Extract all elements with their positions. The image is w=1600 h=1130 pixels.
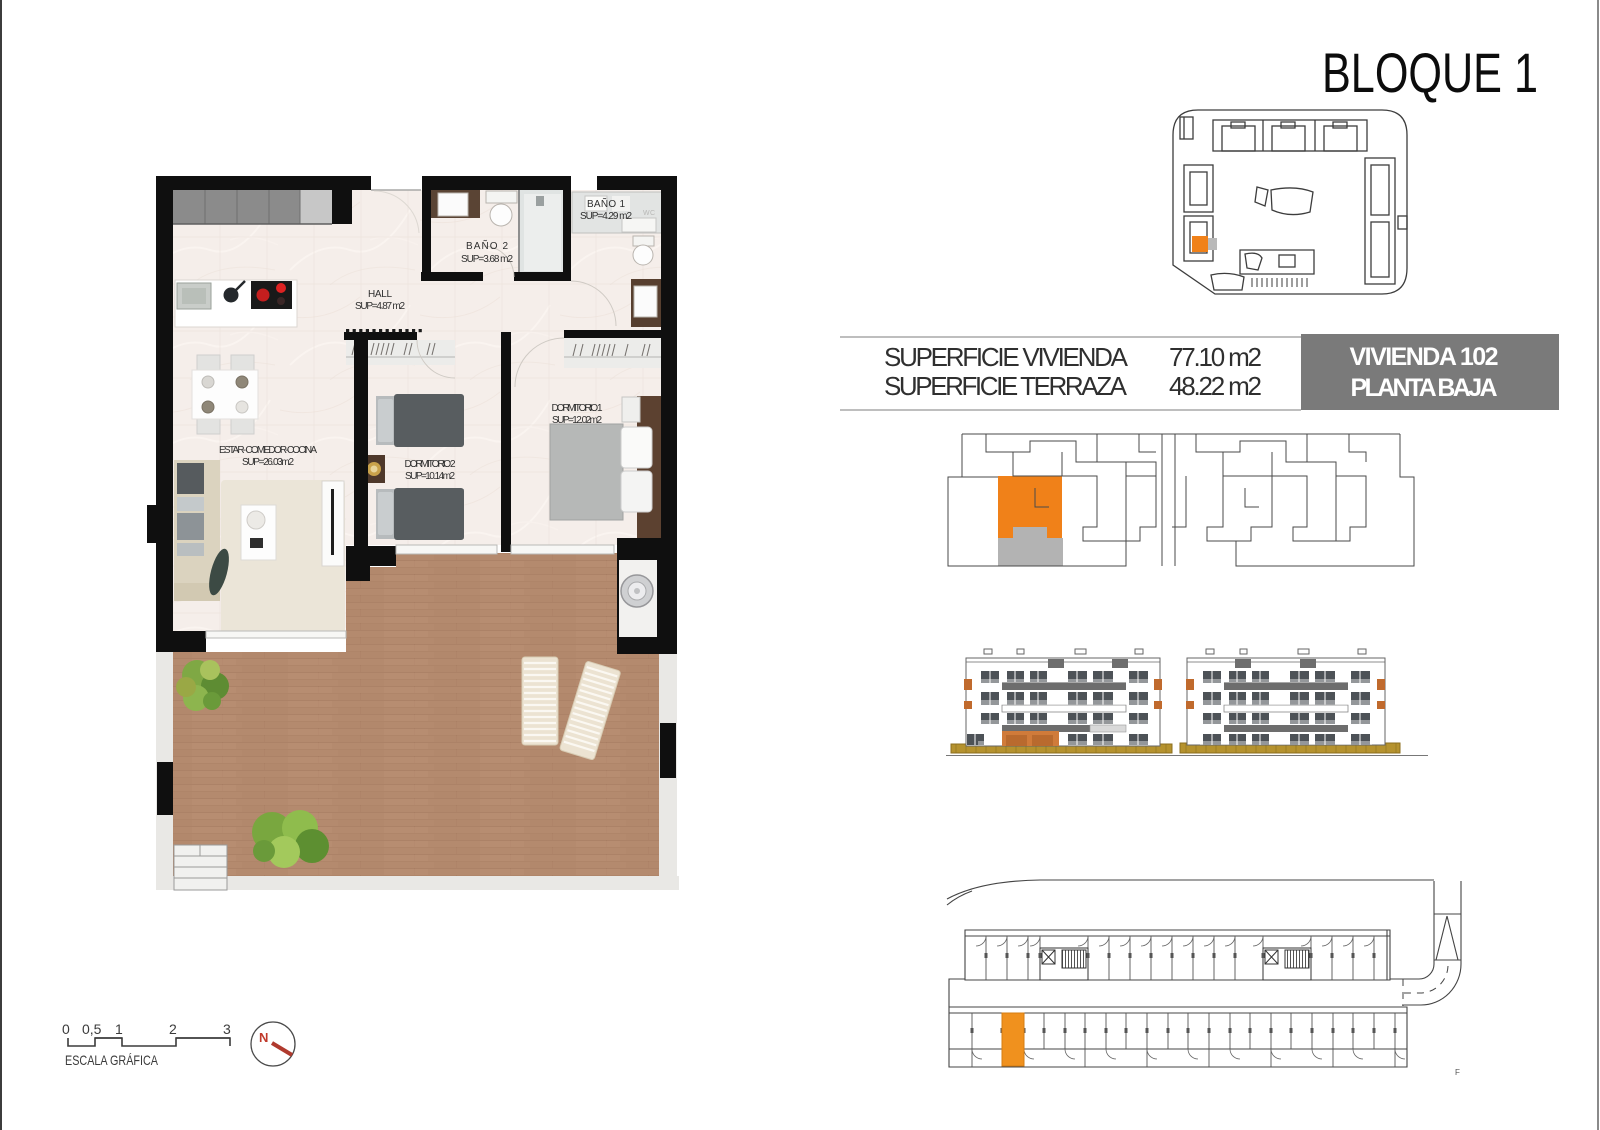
svg-text:1: 1	[115, 1021, 123, 1037]
svg-text:DORMITORIO 1: DORMITORIO 1	[552, 403, 603, 414]
svg-text:BAÑO 1: BAÑO 1	[587, 197, 625, 210]
svg-text:BAÑO 2: BAÑO 2	[466, 239, 508, 252]
svg-text:SUP=3.68 m2: SUP=3.68 m2	[461, 254, 513, 265]
svg-text:BLOQUE 1: BLOQUE 1	[1322, 41, 1538, 104]
svg-text:SUP=10.14m2: SUP=10.14m2	[405, 471, 455, 482]
svg-text:F: F	[1455, 1068, 1460, 1077]
svg-text:48.22 m2: 48.22 m2	[1169, 371, 1262, 401]
svg-text:SUPERFICIE TERRAZA: SUPERFICIE TERRAZA	[884, 371, 1128, 401]
svg-text:SUP=26.03m2: SUP=26.03m2	[242, 457, 294, 468]
svg-text:DORMITORIO 2: DORMITORIO 2	[405, 459, 456, 470]
svg-text:PLANTA BAJA: PLANTA BAJA	[1351, 374, 1498, 402]
svg-text:N: N	[259, 1030, 268, 1045]
svg-text:ESCALA GRÁFICA: ESCALA GRÁFICA	[65, 1052, 159, 1068]
svg-text:3: 3	[223, 1021, 231, 1037]
svg-text:0,5: 0,5	[82, 1021, 102, 1037]
svg-text:2: 2	[169, 1021, 177, 1037]
svg-text:HALL: HALL	[368, 289, 392, 300]
svg-text:77.10 m2: 77.10 m2	[1169, 342, 1262, 372]
svg-text:SUPERFICIE VIVIENDA: SUPERFICIE VIVIENDA	[884, 342, 1129, 372]
svg-text:SUP=4.29 m2: SUP=4.29 m2	[580, 211, 632, 222]
svg-text:WC: WC	[643, 210, 655, 217]
svg-text:SUP=12.02m2: SUP=12.02m2	[552, 415, 602, 426]
svg-text:SUP=4.87 m2: SUP=4.87 m2	[355, 301, 405, 312]
svg-text:0: 0	[62, 1021, 70, 1037]
svg-text:VIVIENDA 102: VIVIENDA 102	[1350, 343, 1499, 371]
svg-text:ESTAR- COMEDOR-COCINA: ESTAR- COMEDOR-COCINA	[219, 445, 317, 456]
